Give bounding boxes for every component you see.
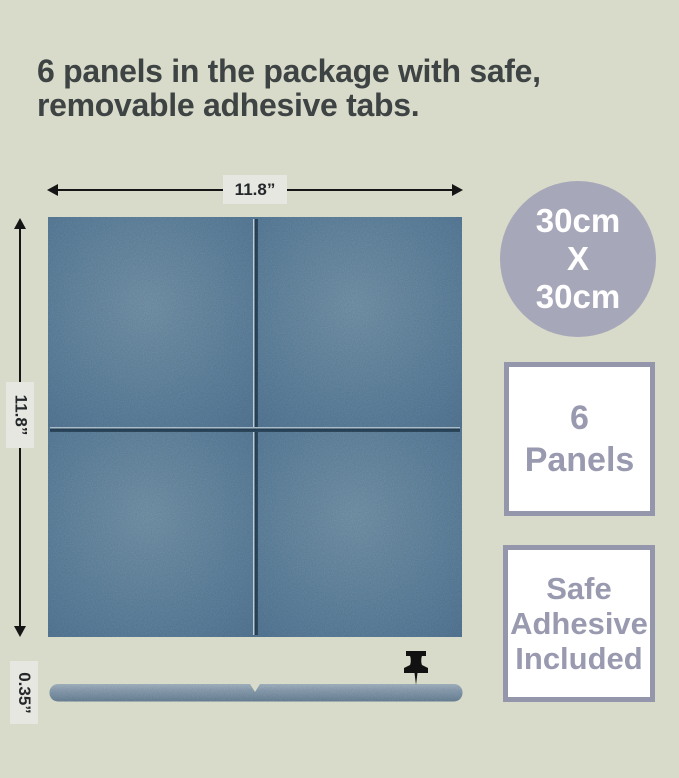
- arrowhead-down-icon: [14, 626, 26, 637]
- adhesive-badge-line2: Adhesive: [510, 606, 648, 641]
- panel-quadrant-bottom-right: [255, 427, 462, 637]
- panel-quadrant-top-left: [48, 217, 255, 427]
- arrowhead-right-icon: [452, 184, 463, 196]
- size-badge: 30cm X 30cm: [500, 181, 656, 337]
- page-title-line2: removable adhesive tabs.: [37, 88, 657, 122]
- height-dimension-value: 11.8”: [10, 395, 30, 436]
- adhesive-badge-line3: Included: [515, 641, 642, 676]
- panel-count-badge: 6 Panels: [504, 362, 655, 516]
- arrowhead-left-icon: [47, 184, 58, 196]
- panel-horizontal-seam: [50, 427, 460, 432]
- panel-side-view: [49, 683, 463, 703]
- acoustic-panel-photo: [48, 217, 462, 637]
- size-badge-line3: 30cm: [536, 278, 620, 316]
- arrowhead-up-icon: [14, 218, 26, 229]
- width-dimension-label: 11.8”: [223, 175, 287, 204]
- pushpin-icon: [402, 651, 430, 689]
- panel-quadrant-bottom-left: [48, 427, 255, 637]
- page-title: 6 panels in the package with safe, remov…: [37, 54, 657, 122]
- width-dimension-value: 11.8”: [235, 180, 276, 200]
- width-dimension-arrow: 11.8”: [47, 182, 463, 198]
- thickness-dimension-value: 0.35”: [14, 672, 34, 714]
- product-infographic: 6 panels in the package with safe, remov…: [0, 0, 679, 778]
- panel-count-number: 6: [570, 397, 589, 439]
- page-title-line1: 6 panels in the package with safe,: [37, 54, 657, 88]
- size-badge-line1: 30cm: [536, 202, 620, 240]
- thickness-dimension-label: 0.35”: [10, 661, 38, 724]
- panel-count-word: Panels: [525, 439, 635, 481]
- panel-quadrant-top-right: [255, 217, 462, 427]
- height-dimension-label: 11.8”: [6, 382, 34, 448]
- adhesive-badge-line1: Safe: [546, 571, 611, 606]
- adhesive-badge: Safe Adhesive Included: [503, 545, 655, 702]
- size-badge-line2: X: [567, 240, 589, 278]
- height-dimension-arrow: 11.8”: [8, 218, 32, 637]
